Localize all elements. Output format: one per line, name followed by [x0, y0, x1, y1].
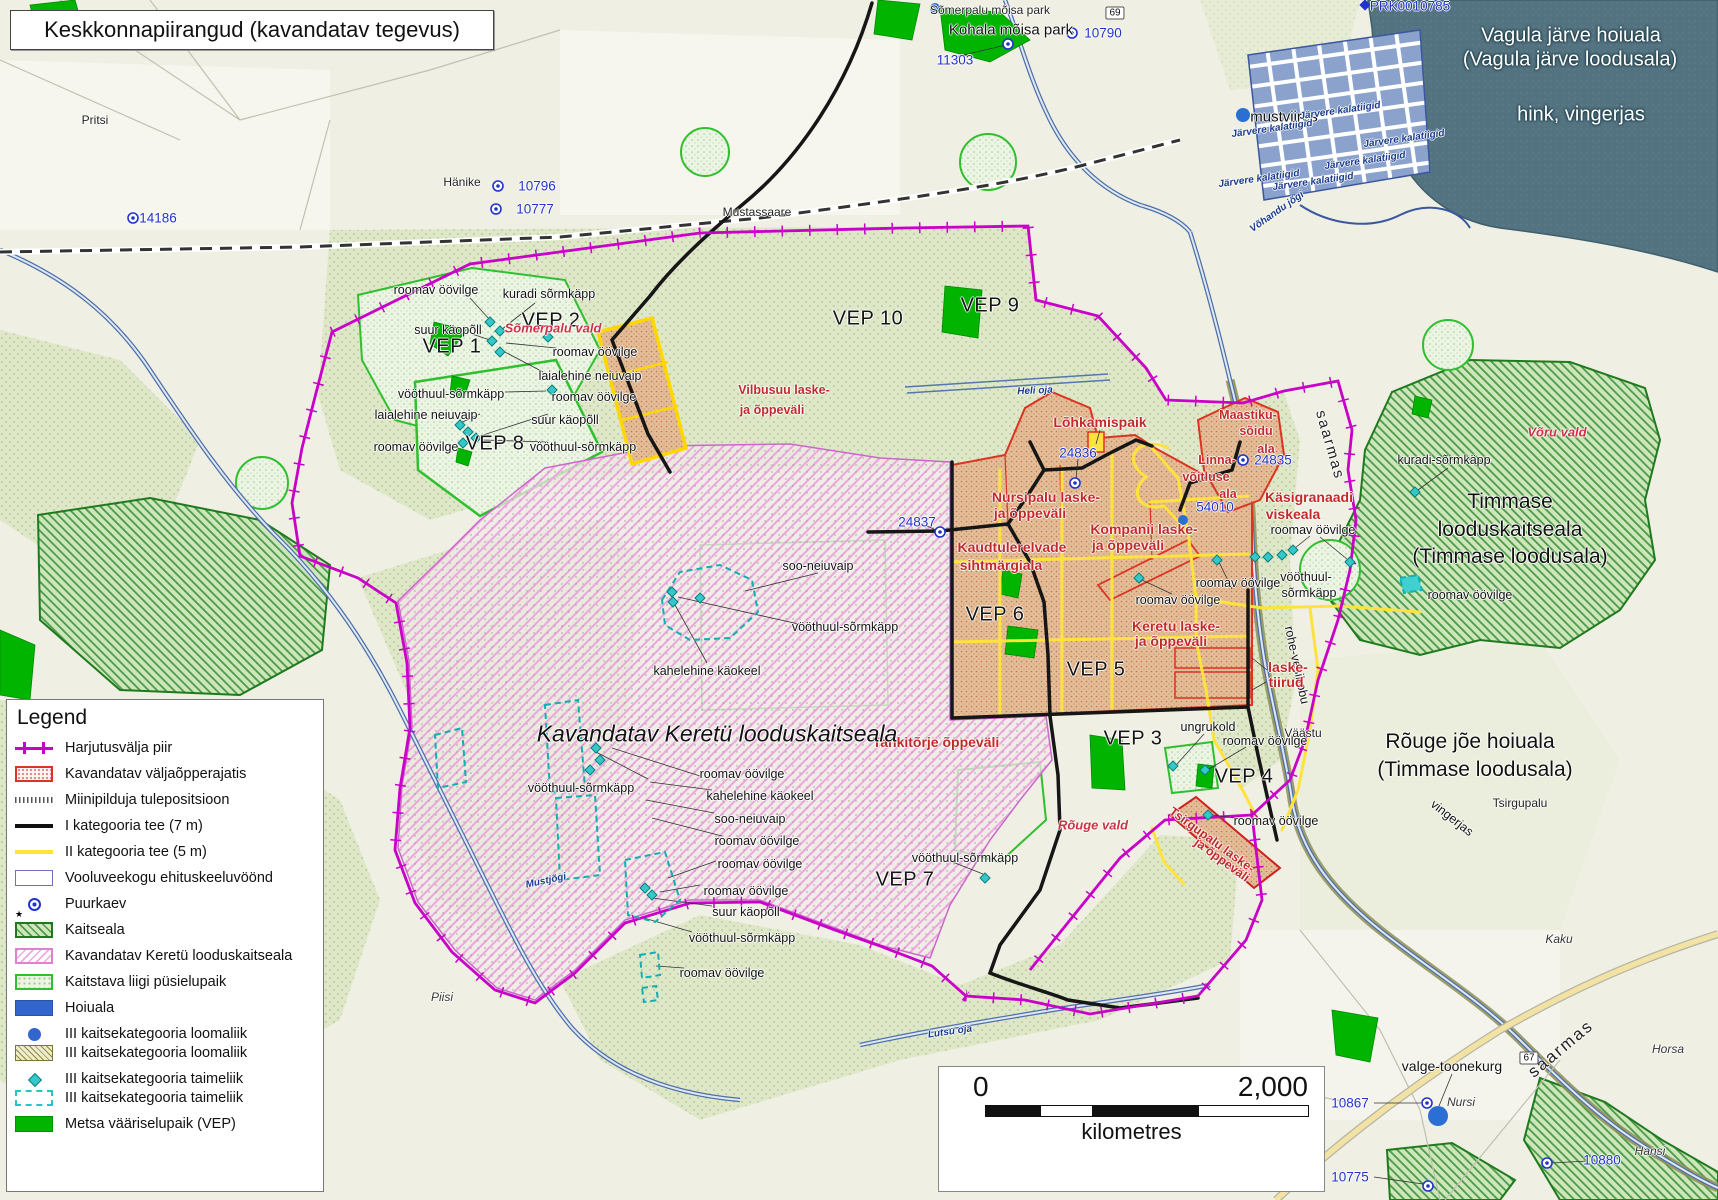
legend-item: Kaitseala: [15, 922, 315, 938]
scalebar-segment: [986, 1106, 1041, 1116]
scalebar-segment: [1041, 1106, 1093, 1116]
legend-item: Puurkaev: [15, 896, 315, 912]
taim2-swatch-icon: [15, 1090, 53, 1106]
scalebar-unit: kilometres: [939, 1119, 1324, 1145]
loom2-swatch-icon: [15, 1045, 53, 1061]
legend-item-label: Kavandatav Keretü looduskaitseala: [65, 948, 292, 964]
legend-item: I kategooria tee (7 m): [15, 818, 315, 834]
legend-item: Kaitstava liigi püsielupaik: [15, 974, 315, 990]
legend-item: Kavandatav Keretü looduskaitseala: [15, 948, 315, 964]
legend-item-label: Vooluveekogu ehituskeeluvöönd: [65, 870, 273, 886]
legend-item-label: III kaitsekategooria taimeliik: [65, 1071, 243, 1087]
legend-item: Harjutusvälja piir: [15, 740, 315, 756]
legend-item: Vooluveekogu ehituskeeluvöönd: [15, 870, 315, 886]
taim1-swatch-icon: [15, 1071, 53, 1087]
scalebar-min: 0: [973, 1071, 989, 1103]
legend-item-label: Miinipilduja tulepositsioon: [65, 792, 229, 808]
legend-item-label: Hoiuala: [65, 1000, 114, 1016]
legend-item: II kategooria tee (5 m): [15, 844, 315, 860]
legend-item-label: III kaitsekategooria loomaliik: [65, 1026, 247, 1042]
tee1-swatch-icon: [15, 818, 53, 834]
legend-item: III kaitsekategooria taimeliik: [15, 1090, 315, 1106]
keretu-swatch-icon: [15, 948, 53, 964]
scalebar-max: 2,000: [1238, 1071, 1308, 1103]
loom1-swatch-icon: [15, 1026, 53, 1042]
legend-item: Metsa vääriselupaik (VEP): [15, 1116, 315, 1132]
boundary-swatch-icon: [15, 740, 53, 756]
legend-item: Hoiuala: [15, 1000, 315, 1016]
legend-item-label: II kategooria tee (5 m): [65, 844, 207, 860]
legend-items: Harjutusvälja piirKavandatav väljaõppera…: [15, 740, 315, 1132]
vep-swatch-icon: [15, 1116, 53, 1132]
legend-item-label: Metsa vääriselupaik (VEP): [65, 1116, 236, 1132]
scalebar: [985, 1105, 1309, 1117]
page-title: Keskkonnapiirangud (kavandatav tegevus): [44, 17, 460, 43]
legend-item-label: Kaitseala: [65, 922, 125, 938]
hoiuala-swatch-icon: [15, 1000, 53, 1016]
legend-item: Miinipilduja tulepositsioon: [15, 792, 315, 808]
legend-item-label: Kavandatav väljaõpperajatis: [65, 766, 246, 782]
kaitseala-swatch-icon: [15, 922, 53, 938]
legend-item: III kaitsekategooria loomaliik: [15, 1045, 315, 1061]
pysielu-swatch-icon: [15, 974, 53, 990]
legend-item-label: Kaitstava liigi püsielupaik: [65, 974, 226, 990]
legend-item-label: III kaitsekategooria loomaliik: [65, 1045, 247, 1061]
legend-item: III kaitsekategooria loomaliik: [15, 1026, 315, 1042]
map-page: roomav öövilgekuradi sõrmkäppsuur käopõl…: [0, 0, 1718, 1200]
legend-item: Kavandatav väljaõpperajatis: [15, 766, 315, 782]
scalebar-segment: [1092, 1106, 1198, 1116]
voolu-swatch-icon: [15, 870, 53, 886]
scalebar-segment: [1199, 1106, 1308, 1116]
tee2-swatch-icon: [15, 844, 53, 860]
legend-item-label: Puurkaev: [65, 896, 126, 912]
legend-title: Legend: [17, 706, 315, 730]
rajatis-swatch-icon: [15, 766, 53, 782]
miini-swatch-icon: [15, 792, 53, 808]
legend-panel: Legend Harjutusvälja piirKavandatav välj…: [6, 699, 324, 1192]
scalebar-box: 0 2,000 kilometres: [938, 1066, 1325, 1192]
map-title-box: Keskkonnapiirangud (kavandatav tegevus): [10, 10, 494, 50]
legend-item-label: I kategooria tee (7 m): [65, 818, 203, 834]
legend-item-label: III kaitsekategooria taimeliik: [65, 1090, 243, 1106]
legend-item: III kaitsekategooria taimeliik: [15, 1071, 315, 1087]
legend-item-label: Harjutusvälja piir: [65, 740, 172, 756]
